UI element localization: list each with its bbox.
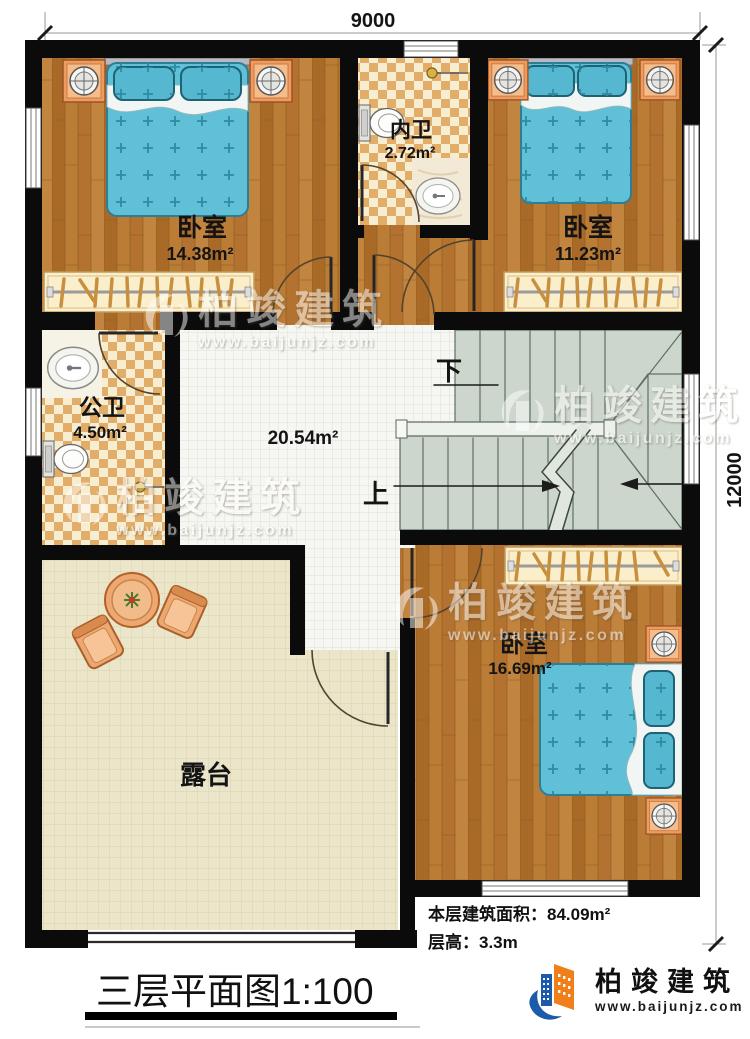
dimension-width-label: 9000 [351,10,396,32]
terrace-railing [88,931,355,945]
corridor-floor [300,545,400,650]
floor-plan-page: 卧室 14.38m² 内卫 2.72m² 卧室 11.23m² 公卫 4.50m… [0,0,750,1039]
wardrobe-bottom-right [505,547,682,585]
dimension-height-label: 12000 [724,452,746,508]
floor-plan-drawing: 卧室 14.38m² 内卫 2.72m² 卧室 11.23m² 公卫 4.50m… [0,0,750,1039]
stair-up-label: 上 [363,479,389,509]
room-label-public-bathroom: 公卫 [79,394,125,420]
floor-height-label: 层高： [428,933,479,952]
room-area-bedroom-top-left: 14.38m² [166,244,233,264]
dimension-right: 12000 [702,38,746,951]
room-label-bedroom-top-left: 卧室 [177,213,227,242]
floor-area-note: 本层建筑面积：84.09m² [428,901,610,929]
door-knob [135,482,145,492]
bed-top-left [105,58,251,216]
nightstand [63,60,105,102]
window-right-2 [684,374,699,484]
window-top [404,41,458,57]
sink-inner-bathroom [416,178,460,214]
nightstand [646,798,682,834]
nightstand [250,60,292,102]
window-right-1 [684,125,699,240]
title-underline [85,1012,397,1020]
bed-bottom-right [540,664,682,795]
brand-name: 柏竣建筑 [595,968,744,998]
brand-website: www.baijunjz.com [595,999,744,1014]
window-bottom [482,881,628,896]
floor-area-value: 84.09m² [547,905,610,924]
room-label-inner-bathroom: 内卫 [390,118,432,142]
room-area-bedroom-bottom-right: 16.69m² [488,659,552,678]
wardrobe-top-right [504,272,682,312]
sink-public-bathroom [48,347,99,388]
nightstand [640,60,680,100]
nightstand [488,60,528,100]
door-knob [427,68,437,78]
page-title-text: 三层平面图 [96,971,281,1012]
floor-height-note: 层高：3.3m [428,929,610,957]
room-area-bedroom-top-right: 11.23m² [555,244,621,264]
wardrobe-top-left [44,272,254,312]
room-area-inner-bathroom: 2.72m² [385,145,436,162]
window-left-2 [26,388,41,456]
room-area-public-bathroom: 4.50m² [73,423,127,442]
nightstand [646,626,682,662]
page-title-scale: 1:100 [281,971,374,1012]
page-title: 三层平面图1:100 [96,961,374,1015]
room-label-bedroom-top-right: 卧室 [563,213,613,242]
dimension-top: 9000 [38,9,707,40]
bed-top-right [519,58,633,203]
room-label-bedroom-bottom-right: 卧室 [500,630,548,658]
floor-area-label: 本层建筑面积： [428,905,547,924]
floor-height-value: 3.3m [479,933,518,952]
brand-logo-icon [528,960,586,1022]
stair-down-label: 下 [436,356,462,386]
room-label-terrace: 露台 [180,760,232,790]
room-area-hall: 20.54m² [268,428,339,449]
floor-notes: 本层建筑面积：84.09m² 层高：3.3m [428,901,610,957]
title-underline-thin [85,1026,420,1028]
window-left-1 [26,108,41,188]
brand-logo: 柏竣建筑 www.baijunjz.com [528,960,744,1022]
